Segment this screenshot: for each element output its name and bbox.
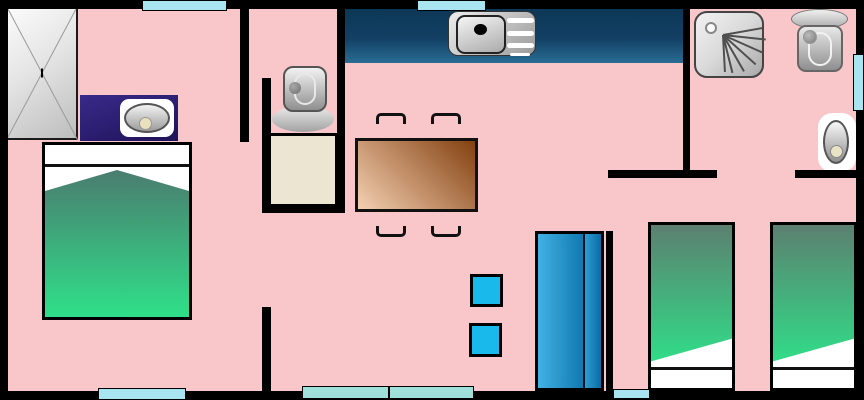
door-bottom-bedroom2: [613, 389, 650, 399]
chair-icon: [431, 226, 461, 237]
bed-blanket: [651, 225, 732, 367]
vanity-sink-surround: [120, 99, 174, 137]
bed-pillow-divider: [651, 367, 732, 370]
bed-blanket: [45, 167, 189, 317]
window-top-bedroom1: [142, 0, 227, 11]
wall-wc-left: [262, 78, 271, 213]
chair-icon: [376, 226, 406, 237]
kitchen-counter: [345, 8, 683, 63]
wall-hallway-right: [795, 170, 856, 178]
sink-drainer-bar: [507, 18, 534, 23]
toilet-icon: [283, 66, 327, 112]
sink-drain: [474, 24, 487, 35]
toilet-flush-knob: [803, 30, 817, 44]
bed-blanket: [773, 225, 854, 367]
fridge-icon: [535, 231, 604, 391]
wall-bedroom1-upper: [240, 9, 249, 142]
fridge-door: [538, 234, 583, 388]
wall-wc-bottom: [262, 206, 345, 213]
wardrobe-center-mark: [41, 69, 43, 78]
single-bed-icon: [648, 222, 735, 391]
window-bottom-bedroom1: [98, 388, 186, 400]
kitchen-sink-icon: [448, 11, 536, 56]
sink-drainer-bar: [507, 43, 534, 48]
sink-drainer-bar: [507, 31, 534, 36]
toilet-icon: [797, 25, 843, 72]
wardrobe-icon: [6, 6, 78, 140]
chair-icon: [376, 113, 406, 124]
wall-bedroom2-left: [606, 231, 613, 391]
window-right-bathroom: [853, 54, 864, 111]
wall-outer-left: [0, 0, 8, 400]
window-top-kitchen: [417, 0, 486, 11]
single-bed-icon: [770, 222, 857, 391]
wall-bedroom1-lower: [262, 307, 271, 391]
washbasin-drain: [830, 145, 843, 158]
double-bed-icon: [42, 142, 192, 320]
dining-table-icon: [355, 138, 478, 212]
bed-pillow-divider: [773, 367, 854, 370]
shower-tray-cabinet: [268, 133, 338, 207]
vanity-counter: [80, 95, 178, 141]
washbasin-icon: [818, 113, 856, 172]
floorplan: [0, 0, 864, 400]
chair-icon: [431, 113, 461, 124]
shower-head: [705, 22, 717, 34]
sink-drainer-bar: [510, 53, 530, 56]
vanity-sink-drain: [139, 117, 152, 130]
wall-hallway-left: [608, 170, 717, 178]
toilet-flush-knob: [289, 82, 301, 94]
fridge-door: [585, 234, 601, 388]
washbasin-bowl: [823, 120, 849, 164]
window-bottom-living-right: [389, 386, 474, 399]
sink-bowl: [456, 15, 506, 54]
stool-icon: [469, 323, 502, 357]
bed-pillow-divider: [45, 164, 189, 167]
stool-icon: [470, 274, 503, 307]
shower-icon: [694, 11, 764, 78]
wall-bathroom-left: [683, 0, 690, 178]
wall-wc-right: [337, 0, 345, 213]
window-bottom-living-left: [302, 386, 389, 399]
vanity-sink-icon: [124, 103, 170, 133]
